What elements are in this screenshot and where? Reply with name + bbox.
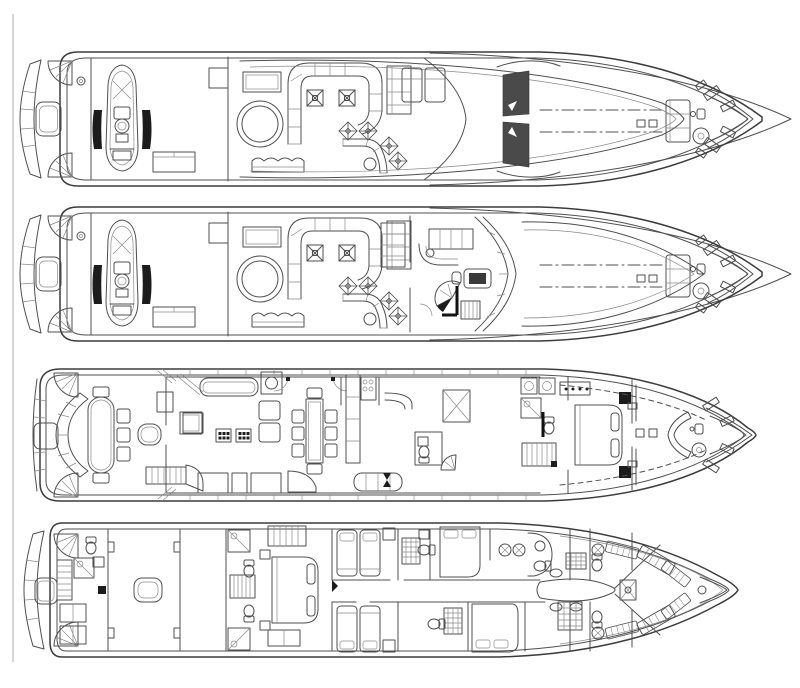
lazarette — [54, 529, 108, 651]
deck-bridge-plan: Bridge deck plan — [20, 207, 791, 341]
blueprint-page: Flybridge sun deck plan Bridge deck plan — [0, 0, 800, 688]
deck-plan-drawing: Flybridge sun deck plan Bridge deck plan — [0, 0, 800, 688]
deck-main-plan: Main deck plan — [33, 369, 756, 501]
guest-heads-mid — [402, 529, 468, 651]
stair-foyer — [415, 390, 557, 470]
guest-heads-aft — [228, 530, 255, 650]
pilothouse — [381, 216, 491, 332]
deck-flybridge-plan: Flybridge sun deck plan — [20, 52, 791, 186]
master-bathroom — [521, 378, 555, 437]
aft-deck-settee — [56, 393, 88, 477]
sun-loungers — [402, 68, 445, 102]
engine-room — [108, 529, 226, 651]
cockpit-table — [88, 387, 114, 483]
dining-area — [274, 377, 347, 474]
cockpit-stairs — [146, 465, 203, 491]
twin-cabins — [332, 528, 470, 652]
bow-area — [560, 385, 752, 485]
radar-arch — [497, 61, 560, 177]
helm-console — [452, 269, 491, 288]
vip-cabin — [260, 526, 338, 651]
crew-area — [470, 529, 727, 651]
deck-lower-plan: Lower deck plan — [24, 523, 738, 657]
galley — [341, 375, 412, 463]
